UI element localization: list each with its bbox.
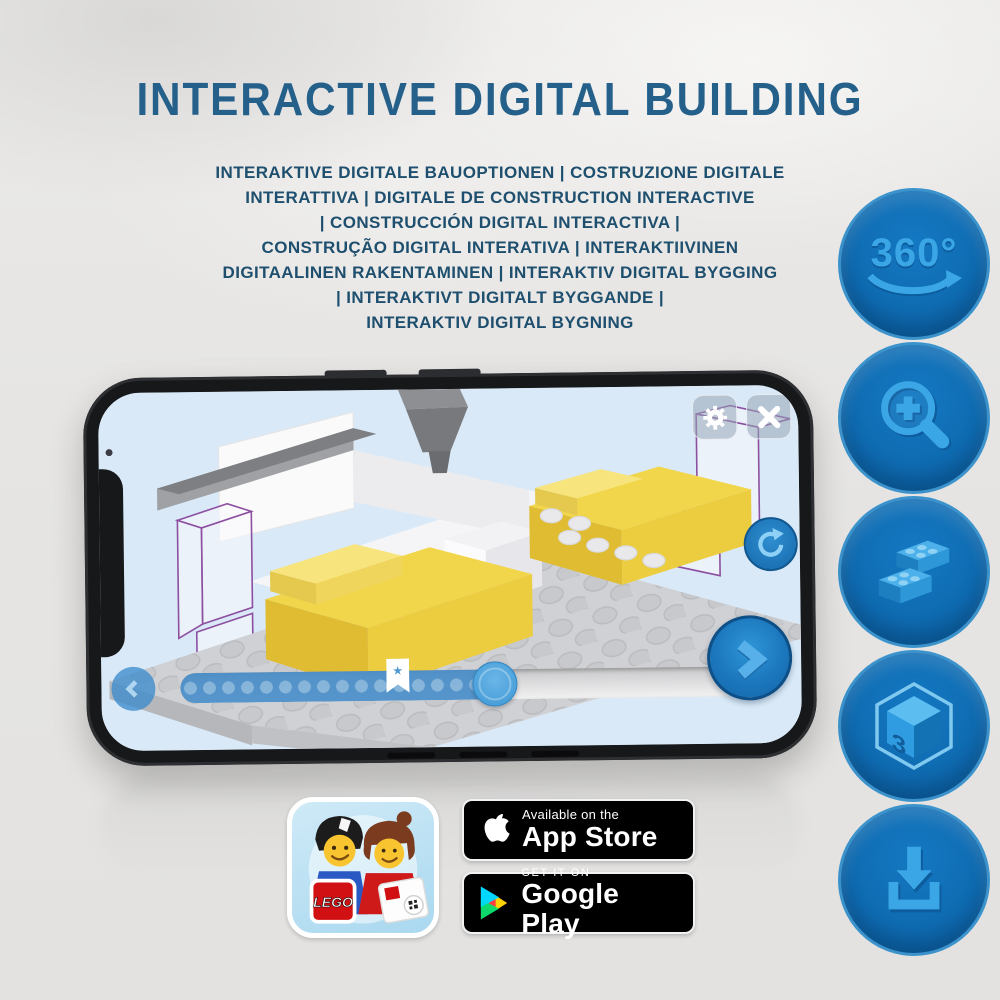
page-title: INTERACTIVE DIGITAL BUILDING xyxy=(40,72,960,126)
subtitle-line: INTERAKTIV DIGITAL BYGNING xyxy=(100,310,900,335)
feature-icon-column: 360° xyxy=(838,188,990,956)
zoom-in-icon xyxy=(838,342,990,494)
volume-button xyxy=(325,370,387,378)
lego-app-icon[interactable]: LEGO xyxy=(287,797,439,938)
app-store-name: App Store xyxy=(522,822,658,851)
speaker-slit xyxy=(387,752,435,759)
app-store-tagline: Available on the xyxy=(522,808,658,822)
close-button[interactable] xyxy=(746,394,792,440)
bricks-icon xyxy=(838,496,990,648)
phone-notch xyxy=(98,469,125,657)
speaker-slit xyxy=(531,750,579,757)
subtitle-line: | CONSTRUCCIÓN DIGITAL INTERACTIVA | xyxy=(100,210,900,235)
lego-bricks-icon xyxy=(867,525,961,619)
subtitle-line: INTERATTIVA | DIGITALE DE CONSTRUCTION I… xyxy=(100,185,900,210)
download-arrow-icon xyxy=(867,833,961,927)
phone-reflection xyxy=(100,772,800,882)
apple-icon xyxy=(474,810,514,850)
rotate-360-icon: 360° xyxy=(838,188,990,340)
download-icon xyxy=(838,804,990,956)
google-play-badge[interactable]: GET IT ON Google Play xyxy=(462,872,695,934)
curved-arrow-icon xyxy=(864,270,964,298)
page: INTERACTIVE DIGITAL BUILDING INTERAKTIVE… xyxy=(0,0,1000,1000)
lego-app-art: LEGO xyxy=(292,802,434,933)
google-play-name: Google Play xyxy=(521,879,683,938)
subtitle-line: INTERAKTIVE DIGITALE BAUOPTIONEN | COSTR… xyxy=(100,160,900,185)
svg-text:LEGO: LEGO xyxy=(313,894,353,910)
settings-button[interactable] xyxy=(692,394,738,440)
svg-text:D: D xyxy=(919,678,938,680)
phone-frame: ★ xyxy=(83,370,818,767)
cube-3d-glyph: 3 D xyxy=(866,678,962,774)
subtitle-block: INTERAKTIVE DIGITALE BAUOPTIONEN | COSTR… xyxy=(100,160,900,335)
magnifier-plus-icon xyxy=(867,371,961,465)
subtitle-line: CONSTRUÇÃO DIGITAL INTERATIVA | INTERAKT… xyxy=(100,235,900,260)
volume-button xyxy=(419,369,481,377)
chevron-right-icon xyxy=(727,635,772,682)
gear-icon xyxy=(699,402,729,432)
subtitle-line: | INTERAKTIVT DIGITALT BYGGANDE | xyxy=(100,285,900,310)
close-icon xyxy=(756,403,782,429)
google-play-icon xyxy=(474,885,513,921)
app-store-badge[interactable]: Available on the App Store xyxy=(462,799,695,861)
front-camera xyxy=(106,449,113,456)
app-screen: ★ xyxy=(98,385,802,752)
speaker-slit xyxy=(459,751,507,758)
subtitle-line: DIGITAALINEN RAKENTAMINEN | INTERAKTIV D… xyxy=(100,260,900,285)
cube-3d-icon: 3 D xyxy=(838,650,990,802)
rotate-icon xyxy=(754,527,788,561)
chevron-left-icon xyxy=(122,678,144,700)
progress-slider-fill xyxy=(180,669,497,703)
